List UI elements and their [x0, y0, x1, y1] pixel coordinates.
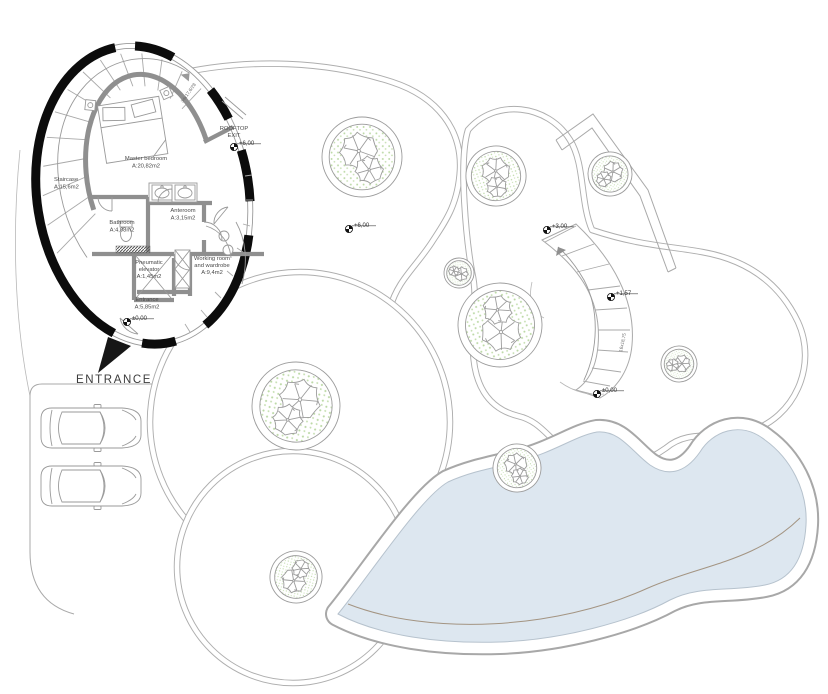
level-stair-landing: +1,57 — [616, 291, 632, 297]
elevator-label: PneumaticelevatorA:1,45m2 — [135, 260, 162, 280]
car-icon — [41, 463, 141, 510]
level-ground: ±0,00 — [602, 388, 618, 394]
level-mid-terrace: +3,00 — [552, 224, 568, 230]
tree-icon — [585, 149, 636, 200]
level-rooftop: +6,00 — [239, 141, 255, 147]
entrance-label: ENTRANCE — [76, 374, 152, 386]
wardrobe — [175, 250, 190, 288]
parking-area — [30, 384, 152, 614]
level-upper-terrace: +6,00 — [354, 223, 370, 229]
vanity-sinks — [149, 183, 197, 202]
bathroom-label: BathroomA:4,08m2 — [109, 220, 134, 234]
level-entrance: ±0,00 — [132, 316, 148, 322]
staircase-label: StaircaseA:15,6m2 — [54, 177, 79, 191]
entrance-room-label: EntranceA:5,85m2 — [135, 297, 160, 311]
tree-icon — [322, 117, 402, 197]
site-plan-svg: 16x18,75 +6,00 +3,00 +1,57 ±0,00 — [0, 0, 828, 694]
site-boundary-line — [15, 150, 30, 396]
shower-strip — [116, 246, 150, 253]
site-plan-canvas: 16x18,75 +6,00 +3,00 +1,57 ±0,00 — [0, 0, 828, 694]
entrance-arrow-icon — [98, 337, 131, 373]
car-icon — [41, 405, 141, 452]
anteroom-label: AnteroomA:3,15m2 — [170, 208, 195, 222]
